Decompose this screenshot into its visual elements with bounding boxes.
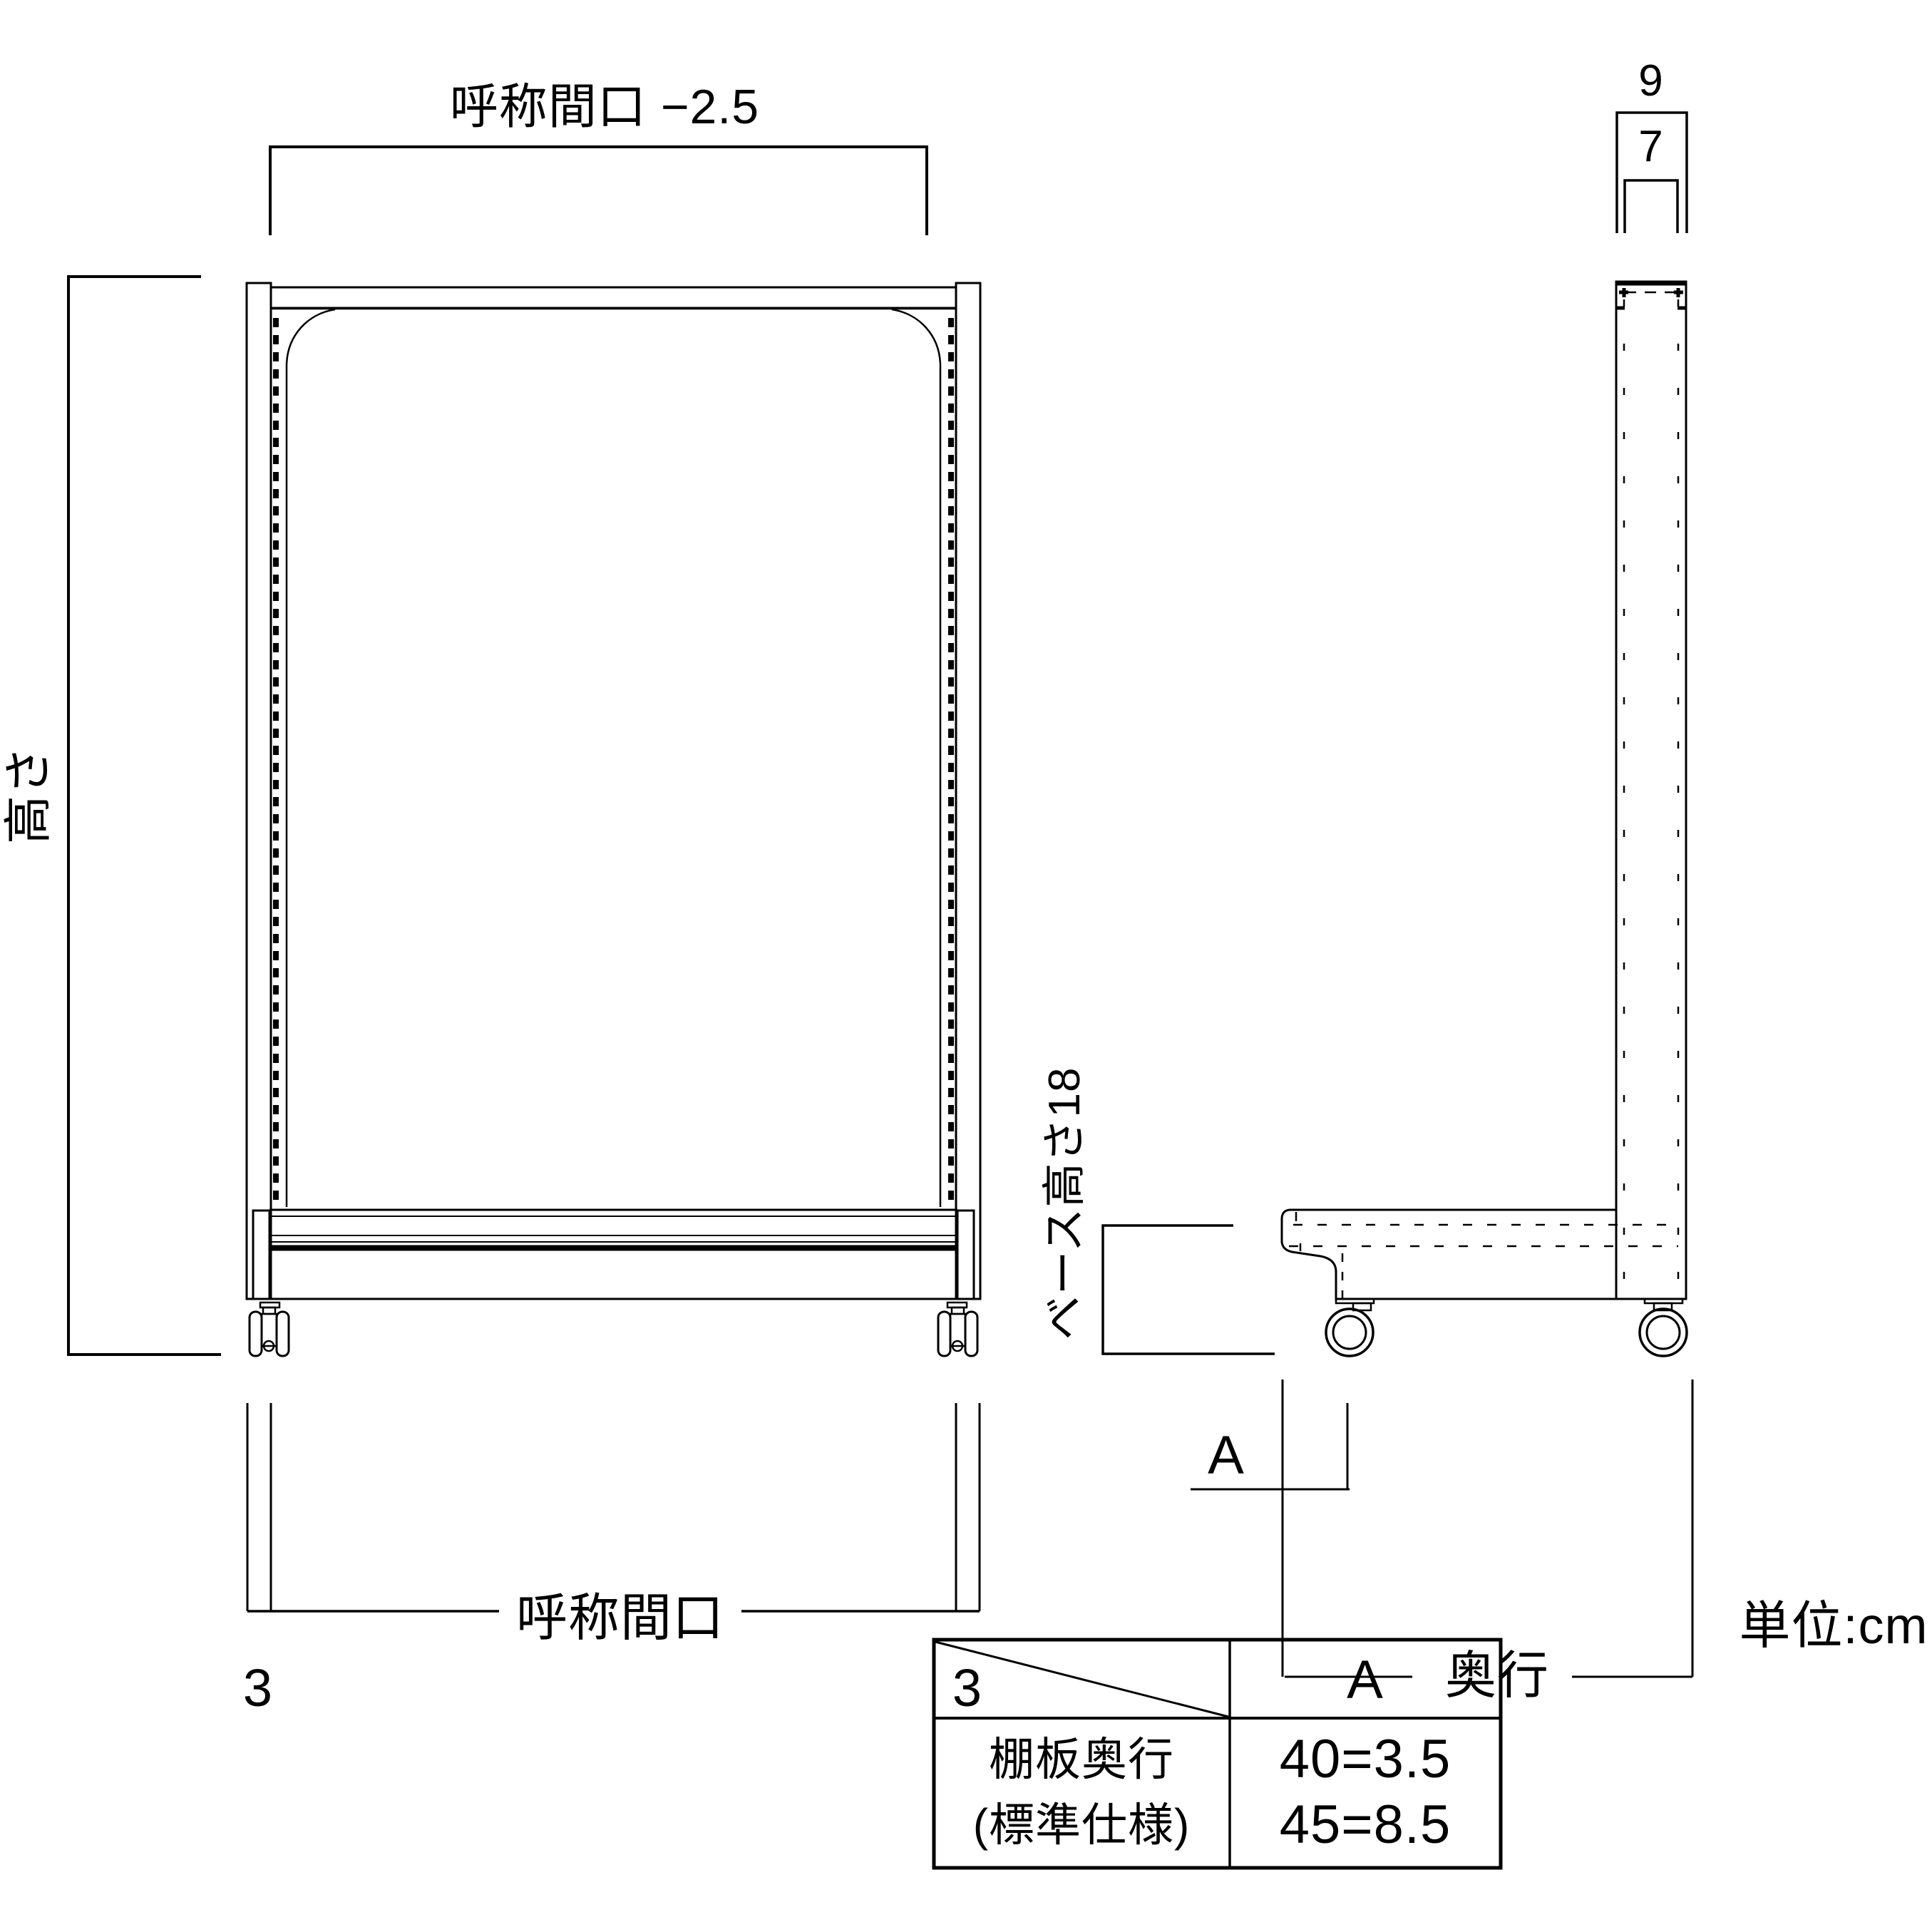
depth-dim-label: 奥行	[1445, 1650, 1549, 1702]
height-dimension-bracket	[68, 277, 221, 1355]
table-row-header-line2: (標準仕様)	[973, 1802, 1191, 1848]
depth-dimension	[1285, 1379, 1692, 1677]
side-front-caster	[1326, 1299, 1374, 1356]
side-view	[1282, 113, 1687, 1356]
caster-wheel	[277, 1312, 289, 1356]
unit-note-label: 単位:cm	[1740, 1600, 1928, 1652]
seven-bracket	[1625, 180, 1677, 233]
front-left-caster	[250, 1302, 289, 1356]
table-row-header-line1: 棚板奥行	[989, 1737, 1174, 1782]
front-view	[247, 283, 980, 1356]
a-dim-label: A	[1208, 1429, 1245, 1483]
front-right-caster	[938, 1302, 977, 1356]
side-inner-width-label: 7	[1638, 125, 1663, 169]
table-value-line2: 45=8.5	[1280, 1798, 1451, 1852]
base-height-dim-label: ベース高さ18	[1043, 1067, 1087, 1340]
table-col-header: A	[1347, 1653, 1384, 1707]
caster-wheel	[965, 1312, 977, 1356]
caster-wheel-inner	[1647, 1316, 1680, 1349]
side-column	[1616, 282, 1686, 1299]
right-base-flange	[957, 1211, 974, 1299]
top-width-dimension-bracket	[270, 147, 927, 235]
drawing-canvas: 呼称間口 −2.5 高さ 呼称間口 3 3 9 7 ベース高さ18 A 奥行 単…	[0, 0, 1932, 1932]
a-dimension	[1191, 1379, 1350, 1677]
height-bracket-line	[68, 277, 221, 1355]
left-base-flange	[253, 1211, 269, 1299]
caster-stem	[952, 1307, 964, 1314]
depth-dim-line	[1285, 1379, 1692, 1677]
kickplate-band	[269, 1245, 957, 1250]
line-art	[0, 0, 1932, 1932]
side-rear-caster	[1640, 1299, 1687, 1356]
left-post	[247, 283, 271, 1299]
left-gusset	[287, 309, 335, 1207]
right-post	[956, 283, 980, 1299]
bottom-right-offset-label: 3	[952, 1662, 982, 1715]
top-width-dim-label: 呼称間口 −2.5	[450, 83, 759, 131]
bottom-left-offset-label: 3	[243, 1662, 273, 1715]
bottom-width-dim-label: 呼称間口	[516, 1593, 724, 1644]
bottom-width-dimension	[247, 1403, 980, 1611]
base-height-dimension	[1103, 1226, 1275, 1354]
caster-stem	[263, 1307, 275, 1314]
caster-wheel-inner	[1333, 1316, 1366, 1349]
top-bracket-line	[270, 147, 927, 235]
top-crossbar	[271, 287, 956, 308]
height-dim-label: 高さ	[4, 746, 53, 844]
base-height-bracket	[1103, 1226, 1275, 1354]
bottom-extension-lines	[247, 1403, 980, 1611]
side-outer-width-label: 9	[1638, 59, 1663, 103]
caster-wheel	[938, 1312, 950, 1356]
right-gusset	[892, 309, 940, 1207]
table-value-line1: 40=3.5	[1280, 1732, 1451, 1787]
caster-wheel	[250, 1312, 262, 1356]
